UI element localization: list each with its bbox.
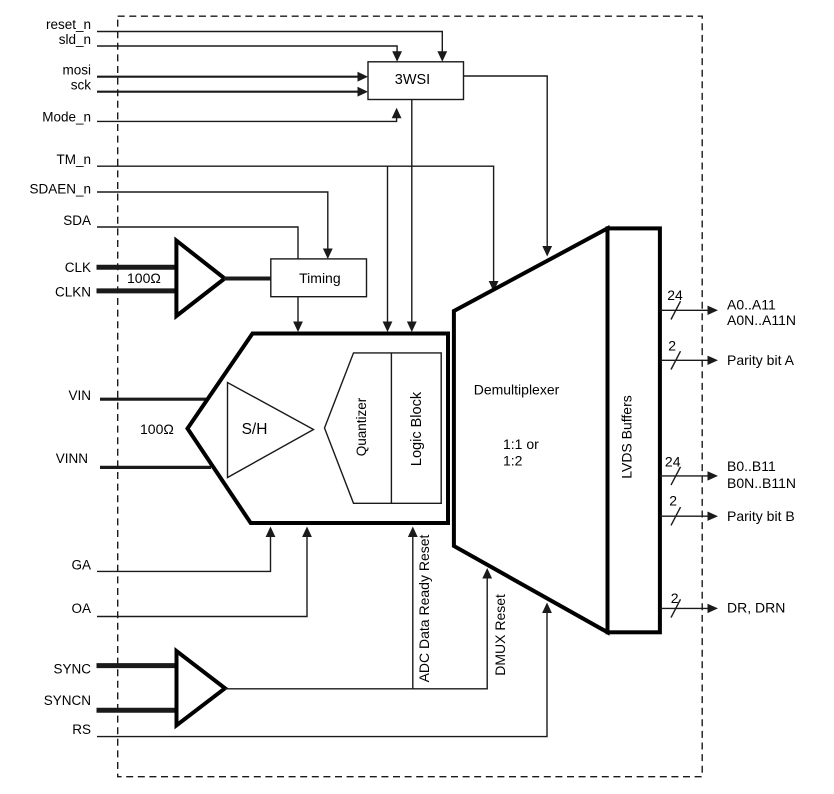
svg-text:LVDS Buffers: LVDS Buffers — [619, 395, 635, 479]
svg-text:mosi: mosi — [62, 62, 91, 77]
svg-text:SYNC: SYNC — [53, 661, 91, 676]
svg-text:100Ω: 100Ω — [127, 270, 161, 286]
svg-text:ADC Data Ready Reset: ADC Data Ready Reset — [416, 534, 432, 682]
svg-text:VIN: VIN — [68, 388, 91, 403]
svg-text:Mode_n: Mode_n — [42, 109, 91, 124]
svg-text:2: 2 — [671, 590, 679, 606]
svg-text:sck: sck — [71, 78, 92, 93]
svg-text:100Ω: 100Ω — [140, 421, 174, 437]
svg-text:RS: RS — [72, 722, 91, 737]
svg-text:1:2: 1:2 — [503, 452, 523, 468]
svg-text:sld_n: sld_n — [59, 32, 91, 47]
svg-text:TM_n: TM_n — [56, 152, 91, 167]
svg-text:24: 24 — [667, 287, 683, 303]
svg-text:2: 2 — [669, 493, 677, 509]
svg-text:SDAEN_n: SDAEN_n — [29, 181, 91, 196]
svg-text:OA: OA — [71, 601, 91, 616]
svg-text:DR, DRN: DR, DRN — [727, 600, 785, 616]
svg-text:1:1 or: 1:1 or — [503, 436, 539, 452]
svg-text:CLKN: CLKN — [55, 285, 91, 300]
svg-text:Parity bit B: Parity bit B — [727, 508, 795, 524]
svg-text:SDA: SDA — [63, 213, 91, 228]
svg-text:Demultiplexer: Demultiplexer — [474, 381, 560, 397]
svg-text:GA: GA — [71, 557, 91, 572]
svg-text:2: 2 — [668, 338, 676, 354]
svg-text:reset_n: reset_n — [46, 17, 91, 32]
svg-text:3WSI: 3WSI — [395, 72, 430, 88]
svg-text:VINN: VINN — [56, 451, 88, 466]
svg-text:A0N..A11N: A0N..A11N — [727, 312, 796, 328]
svg-text:B0..B11: B0..B11 — [727, 458, 776, 474]
svg-text:Timing: Timing — [299, 270, 341, 286]
svg-text:Quantizer: Quantizer — [354, 397, 369, 456]
svg-text:Logic Block: Logic Block — [409, 391, 425, 466]
svg-text:B0N..B11N: B0N..B11N — [727, 475, 796, 491]
svg-text:SYNCN: SYNCN — [44, 693, 91, 708]
svg-text:A0..A11: A0..A11 — [727, 296, 776, 312]
svg-text:S/H: S/H — [242, 421, 268, 438]
svg-text:Parity bit A: Parity bit A — [727, 352, 795, 368]
svg-text:24: 24 — [665, 454, 681, 470]
svg-text:DMUX Reset: DMUX Reset — [492, 594, 508, 676]
svg-text:CLK: CLK — [65, 260, 91, 275]
